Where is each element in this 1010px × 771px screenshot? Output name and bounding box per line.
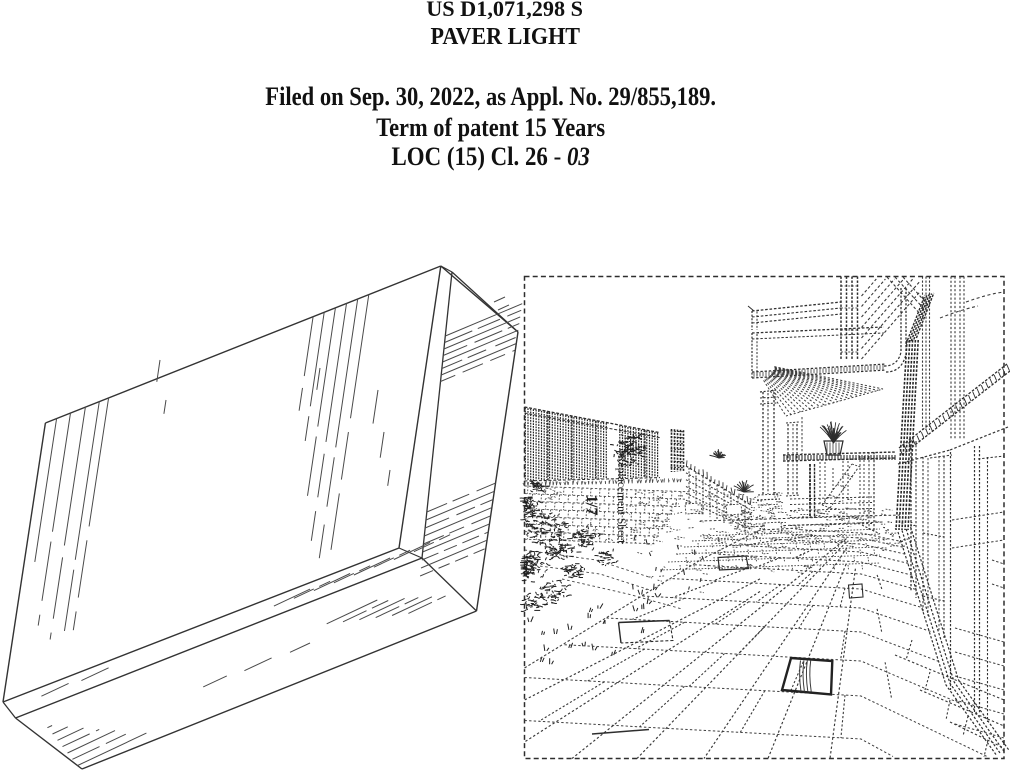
svg-text:1/7: 1/7: [583, 495, 600, 515]
svg-text:Replacement Sheet: Replacement Sheet: [615, 455, 627, 544]
